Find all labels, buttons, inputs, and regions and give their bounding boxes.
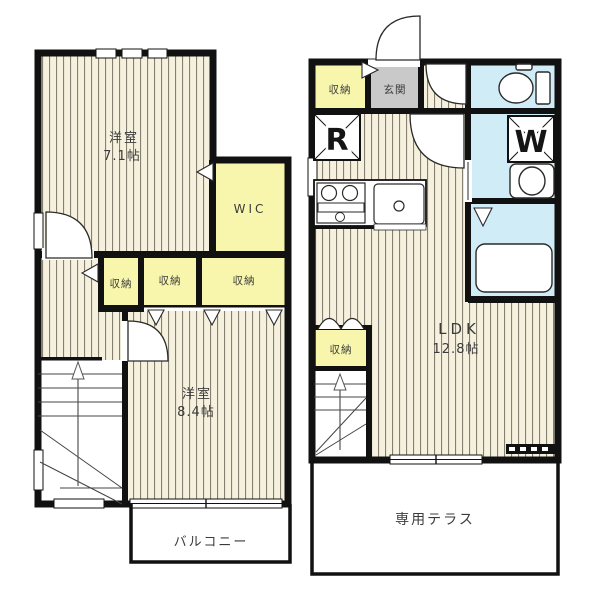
wall bbox=[418, 62, 424, 112]
kitchen-counter bbox=[314, 180, 426, 230]
second-floor-plan: 洋室 7.1帖 WIC 収納 収納 収納 洋室 8.4帖 バルコニー bbox=[34, 49, 290, 562]
wall bbox=[138, 255, 144, 307]
storage-2-label: 収納 bbox=[159, 274, 182, 287]
floor-plan-canvas: 洋室 7.1帖 WIC 収納 収納 収納 洋室 8.4帖 バルコニー bbox=[0, 0, 600, 600]
entry-door-arc bbox=[376, 16, 420, 60]
entrance-label: 玄関 bbox=[384, 83, 407, 96]
wall bbox=[312, 366, 370, 371]
window bbox=[148, 49, 167, 58]
refrigerator-marker: R bbox=[314, 114, 360, 160]
first-floor-plan: W R bbox=[308, 16, 558, 574]
terrace-label: 専用テラス bbox=[395, 512, 475, 528]
ldk-storage-label: 収納 bbox=[330, 343, 353, 356]
floor-plan-image: 洋室 7.1帖 WIC 収納 収納 収納 洋室 8.4帖 バルコニー bbox=[0, 0, 600, 600]
dashed-fixture-bar bbox=[506, 444, 556, 454]
room-a-label: 洋室 bbox=[109, 130, 139, 146]
wall bbox=[122, 311, 128, 321]
sink-icon bbox=[374, 184, 424, 224]
storage-front-line bbox=[144, 305, 288, 308]
washer-marker: W bbox=[508, 116, 554, 162]
wall bbox=[122, 360, 128, 504]
entry-storage-label: 収納 bbox=[329, 83, 352, 96]
stair-edge-line bbox=[38, 357, 102, 361]
window bbox=[34, 213, 43, 249]
ldk-label: LDK bbox=[438, 320, 480, 338]
bathtub-icon bbox=[476, 244, 552, 292]
ldk-floor bbox=[468, 302, 558, 460]
storage-1-label: 収納 bbox=[110, 277, 133, 290]
window bbox=[34, 450, 43, 490]
stove-icon bbox=[317, 183, 365, 223]
ldk-size: 12.8帖 bbox=[433, 342, 480, 357]
wall bbox=[366, 325, 372, 460]
window bbox=[96, 49, 116, 58]
wic-label: WIC bbox=[234, 202, 267, 216]
counter-end-panel bbox=[374, 224, 426, 230]
wall bbox=[468, 108, 558, 114]
storage-3-label: 収納 bbox=[233, 274, 256, 287]
window bbox=[122, 49, 142, 58]
balcony-rail bbox=[131, 504, 290, 562]
refrigerator-letter: R bbox=[325, 123, 348, 158]
washbasin-icon bbox=[510, 164, 554, 198]
room-a-size: 7.1帖 bbox=[103, 149, 141, 164]
washer-letter: W bbox=[514, 125, 547, 160]
wall bbox=[468, 296, 558, 303]
wall bbox=[196, 255, 202, 307]
room-b-size: 8.4帖 bbox=[177, 405, 215, 420]
wall bbox=[98, 255, 104, 307]
room-b-label: 洋室 bbox=[182, 386, 212, 402]
wall bbox=[465, 200, 471, 302]
window bbox=[54, 499, 104, 508]
balcony-label: バルコニー bbox=[174, 535, 249, 550]
wall bbox=[468, 198, 558, 204]
wall bbox=[98, 305, 144, 312]
